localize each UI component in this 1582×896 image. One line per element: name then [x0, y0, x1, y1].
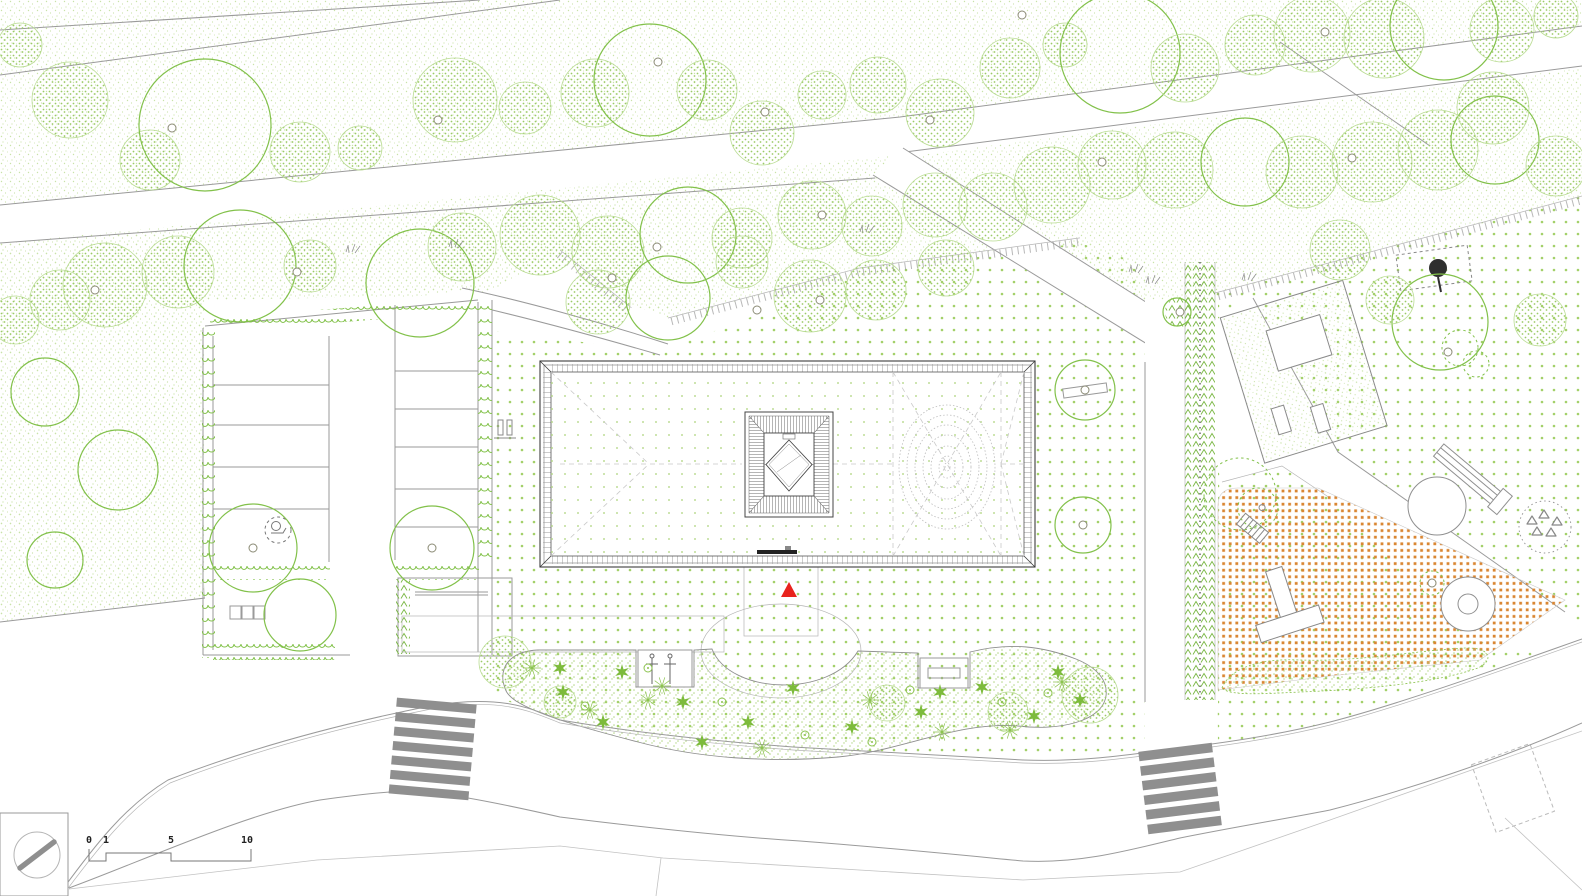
tree-canopy — [1457, 72, 1529, 144]
tree-canopy — [1344, 0, 1424, 78]
hedge-strip-small — [396, 580, 410, 654]
tree-trunk — [1348, 154, 1356, 162]
crosswalk-stripe — [1144, 787, 1219, 805]
tree-trunk — [91, 286, 99, 294]
tree-canopy — [906, 79, 974, 147]
tree-trunk — [653, 243, 661, 251]
skylight — [745, 412, 833, 517]
tree-canopy — [903, 173, 967, 237]
tree-trunk — [1444, 348, 1452, 356]
crosswalk-stripe — [396, 698, 476, 714]
tree-canopy — [1266, 136, 1338, 208]
crosswalk-stripe — [389, 784, 469, 800]
tree-trunk — [818, 211, 826, 219]
flower-ring-dot — [804, 734, 806, 736]
scale-bar: 0 1 5 10 — [86, 835, 253, 861]
dashed-plot — [1472, 744, 1555, 833]
crosswalk-1 — [389, 698, 477, 801]
tree-canopy — [499, 82, 551, 134]
crosswalk-stripe — [395, 712, 475, 728]
tree-canopy — [1514, 294, 1566, 346]
scale-label-1: 1 — [103, 835, 109, 846]
tree-canopy — [716, 236, 768, 288]
tree-canopy — [142, 236, 214, 308]
north-arrow — [0, 813, 68, 896]
tree-canopy — [566, 270, 630, 334]
tree-canopy — [32, 62, 108, 138]
tree-trunk — [761, 108, 769, 116]
tree-trunk — [428, 544, 436, 552]
tree-canopy — [0, 23, 42, 67]
slide-landing-pit — [1408, 477, 1466, 535]
tree-canopy — [842, 196, 902, 256]
tree-trunk — [753, 306, 761, 314]
tree-canopy — [846, 260, 906, 320]
crosswalk-stripe — [1147, 816, 1222, 834]
tree-trunk — [1098, 158, 1106, 166]
bike-racks — [638, 650, 692, 687]
crosswalk-stripe — [1142, 772, 1217, 790]
tree-trunk — [249, 544, 257, 552]
tree-trunk — [1081, 386, 1089, 394]
flower-ring-dot — [721, 701, 723, 703]
tree-canopy — [63, 243, 147, 327]
site-plan-page: 0 1 5 10 — [0, 0, 1582, 896]
crosswalk-stripe — [392, 741, 472, 757]
crosswalk-stripe — [391, 755, 471, 771]
tree-trunk — [1321, 28, 1329, 36]
tree-canopy — [500, 195, 580, 275]
tree-canopy — [413, 58, 497, 142]
tree-canopy — [270, 122, 330, 182]
parking-area — [202, 295, 512, 660]
flower-ring-dot — [647, 667, 649, 669]
tree-trunk — [434, 116, 442, 124]
tree-trunk — [293, 268, 301, 276]
crosswalk-stripe — [1138, 743, 1213, 761]
tree-trunk — [608, 274, 616, 282]
tree-trunk — [1079, 521, 1087, 529]
tree-canopy — [479, 636, 531, 688]
flower-ring-dot — [1001, 701, 1003, 703]
flower-ring-dot — [1047, 692, 1049, 694]
scale-label-0: 0 — [86, 835, 92, 846]
tree-canopy — [284, 240, 336, 292]
scale-label-5: 5 — [168, 835, 174, 846]
tree-canopy — [980, 38, 1040, 98]
tree-trunk — [168, 124, 176, 132]
crosswalk-stripe — [394, 727, 474, 743]
scale-label-10: 10 — [241, 835, 253, 846]
tree-canopy — [798, 71, 846, 119]
tree-canopy — [1366, 276, 1414, 324]
tree-canopy — [428, 213, 496, 281]
tree-trunk — [654, 58, 662, 66]
tree-trunk — [1428, 579, 1436, 587]
tree-trunk — [816, 296, 824, 304]
tree-trunk — [1176, 308, 1184, 316]
tree-canopy — [850, 57, 906, 113]
tree-canopy — [677, 60, 737, 120]
tree-canopy — [918, 240, 974, 296]
tree-canopy — [1062, 667, 1118, 723]
crosswalk-2 — [1138, 743, 1222, 834]
building — [540, 361, 1035, 567]
tree-canopy — [1526, 136, 1582, 196]
tree-canopy — [1470, 0, 1534, 62]
crosswalk-stripe — [1145, 801, 1220, 819]
flower-ring-dot — [871, 741, 873, 743]
tree-canopy — [338, 126, 382, 170]
site-plan-svg: 0 1 5 10 — [0, 0, 1582, 896]
tree-canopy — [1310, 220, 1370, 280]
tree-canopy — [1078, 131, 1146, 199]
tree-canopy — [1274, 0, 1350, 72]
roof-drain — [785, 546, 791, 550]
tree-trunk — [1018, 11, 1026, 19]
tree-canopy — [988, 692, 1028, 732]
tree-canopy — [1534, 0, 1578, 38]
spinner — [1441, 577, 1495, 631]
tree-canopy — [1151, 34, 1219, 102]
tree-trunk — [926, 116, 934, 124]
flower-ring-dot — [584, 705, 586, 707]
flower-ring-dot — [909, 689, 911, 691]
crosswalk-stripe — [1140, 757, 1215, 775]
entrance-label-strip — [757, 550, 797, 554]
tree-canopy — [774, 260, 846, 332]
tree-canopy — [778, 181, 846, 249]
crosswalk-stripe — [390, 770, 470, 786]
